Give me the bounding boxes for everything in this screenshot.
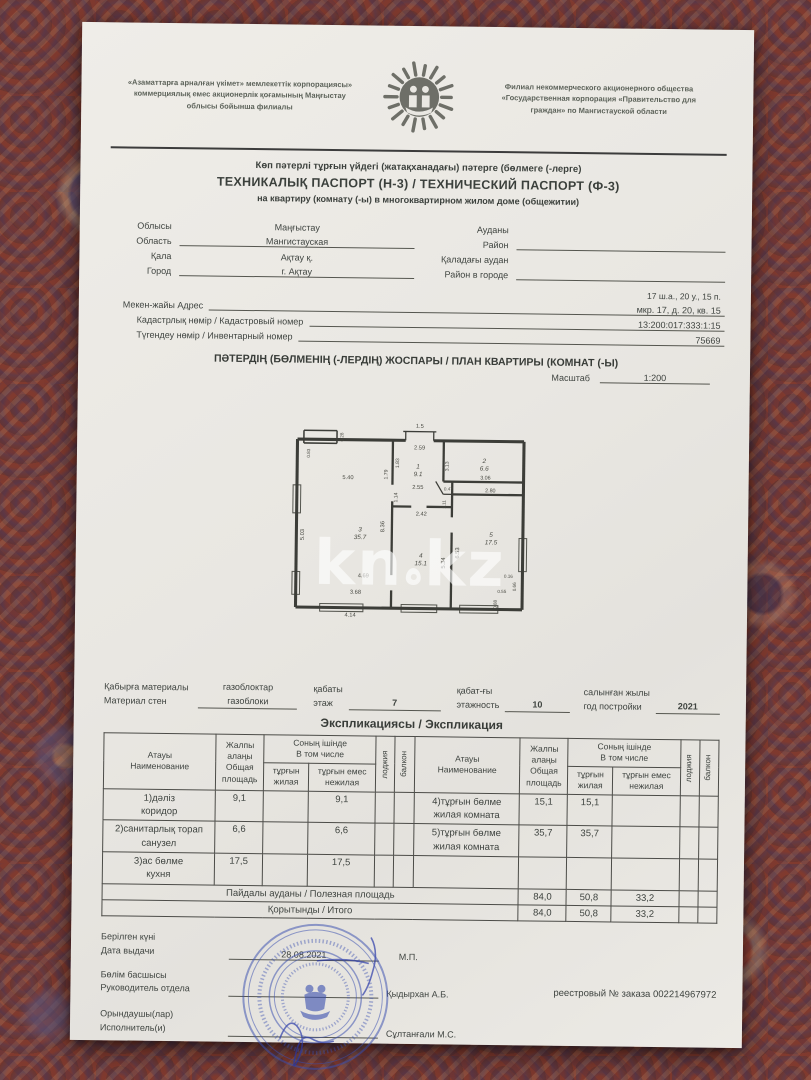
col-living-right: тұрғын жилая [568,766,613,794]
plan-dimension-label: 0.47 [444,486,453,491]
plan-dimension-label: 0.83 [306,448,311,457]
plan-dimension-label: 2.42 [416,512,427,518]
room-name-cell: 3)ас бөлме кухня [102,852,215,885]
org-name-kazakh: «Азаматтарға арналған үкімет» мемлекетті… [111,76,368,113]
area-value-cell [519,857,567,889]
government-corporation-sun-logo-icon [376,54,463,141]
department-head-label: Бөлім басшысы Руководитель отдела [100,968,220,997]
stamp-place-label: М.П. [399,951,418,961]
area-value-cell: 6,6 [215,822,263,854]
wall-line [435,481,443,494]
department-head-name: Қыдырхан А.Б. [386,989,536,1001]
title-line-russian: на квартиру (комнату (-ы) в многоквартир… [110,191,726,209]
build-year-label: салынған жылы год постройки [583,686,649,714]
wall-line [522,442,524,610]
wall-line [443,482,523,483]
col-total-right: Жалпы алаңы Общая площадь [520,738,569,794]
col-name-right: Атауы Наименование [414,737,520,794]
col-nonliving-left: тұрғын емес нежилая [308,763,376,792]
floor-label: қабаты этаж [313,683,343,710]
room-name-cell: 4)тұрғын бөлме жилая комната [414,792,520,825]
explication-table: Атауы Наименование Жалпы алаңы Общая пло… [101,732,719,923]
district-label-kz: Ауданы [421,224,517,235]
plan-dimension-label: 3.06 [480,475,490,481]
wall-line [295,607,522,610]
room-name-cell [413,856,519,889]
floor-plan: 1.52.5919.12.551.831.791.1426.63.133.060… [105,411,724,639]
executor-name: Сұлтанғали М.С. [386,1029,536,1041]
plan-dimension-label: 1.5 [416,424,424,430]
total-value-cell [678,906,697,922]
address-block: 17 ш.а., 20 у., 15 п. Мекен-жайы Адресмк… [108,279,725,347]
city-label-kz: Қала [109,250,179,261]
total-value-cell: 50,8 [566,889,611,906]
plan-dimension-label: 2.80 [485,488,495,494]
org-name-russian: Филиал некоммерческого акционерного обще… [470,81,727,118]
plan-dimension-label: 1.14 [393,492,399,502]
plan-dimension-label: 2.55 [412,485,423,491]
kn-kz-watermark: knkz [314,526,507,601]
registry-order-number: реестровый № заказа 002214967972 [553,987,716,1000]
total-value-cell [698,907,717,923]
area-value-cell [698,827,718,859]
area-value-cell: 6,6 [308,823,376,855]
total-value-cell: 33,2 [611,906,678,923]
area-value-cell: 17,5 [214,853,262,885]
area-value-cell: 35,7 [567,826,612,858]
area-value-cell [375,792,395,824]
explication-heading: Экспликациясы / Экспликация [104,713,720,735]
plan-dimension-label: 1 [416,464,420,471]
col-balcony-left: балкон [395,736,415,792]
wall-material-label: Қабырға материалы Материал стен [104,680,189,708]
area-value-cell: 9,1 [308,791,376,823]
total-value-cell [698,891,717,907]
oblast-label-ru: Область [110,235,180,246]
area-value-cell: 35,7 [519,825,567,857]
total-value-cell: 84,0 [518,888,566,905]
materials-row: Қабырға материалы Материал стен газоблок… [104,679,720,715]
plan-dimension-label: 4.14 [344,613,356,619]
area-value-cell [612,795,680,827]
col-total-left: Жалпы алаңы Общая площадь [215,734,264,790]
document-header: «Азаматтарға арналған үкімет» мемлекетті… [111,50,728,144]
area-value-cell: 9,1 [215,790,263,822]
area-value-cell [263,791,308,823]
plan-dimension-label: 5.40 [342,475,353,481]
area-value-cell [262,854,307,886]
department-head-signature-line [228,986,378,999]
area-value-cell: 15,1 [519,794,567,826]
area-value-cell: 17,5 [307,854,375,886]
city-district-value-ru [516,279,725,283]
plan-dimension-label: 2.59 [414,445,425,451]
total-value-cell: 50,8 [566,905,611,922]
area-value-cell [263,822,308,854]
plan-dimension-label: 9.1 [413,471,422,478]
area-value-cell [611,858,679,890]
plan-dimension-label: 5.03 [300,529,306,540]
city-label-ru: Город [109,265,179,276]
room-name-cell: 5)тұрғын бөлме жилая комната [413,824,519,857]
inventory-value: 75669 [299,331,725,347]
wall-line [452,494,523,495]
area-value-cell [394,855,414,887]
area-value-cell [679,796,699,828]
col-incl-right: Соның ішінде В том числе [568,738,680,767]
document-title: Көп пәтерлі тұрғын үйдегі (жатақханадағы… [110,158,726,209]
photo-of-document: { "header": { "org_left": "«Азаматтарға … [0,0,811,1080]
col-incl-left: Соның ішінде В том числе [264,735,376,764]
build-year-value: 2021 [656,699,720,714]
issue-date-value: 28.08.2021 [229,948,379,961]
wall-material-value: газоблоктар газоблоки [198,680,297,709]
wall-line [295,439,297,607]
area-value-cell [567,857,612,889]
col-nonliving-right: тұрғын емес нежилая [613,767,681,796]
address-label: Мекен-жайы Адрес [109,299,210,310]
plan-dimension-label: 2 [481,458,486,465]
plan-dimension-label: 3.13 [444,461,450,471]
floors-total-label: қабат-ғы этажность [456,685,499,713]
col-loggia-left: лоджия [376,736,396,792]
col-loggia-right: лоджия [680,740,700,796]
city-value-ru: г. Ақтау [179,265,414,279]
city-district-label-ru: Район в городе [420,269,516,280]
scale-label: Масштаб [551,373,590,383]
total-value-cell: 84,0 [518,904,566,921]
district-label-ru: Район [420,239,516,250]
area-value-cell [374,855,394,887]
city-district-label-kz: Қаладағы аудан [420,254,516,265]
area-value-cell [698,859,718,891]
col-name-left: Атауы Наименование [103,733,216,790]
area-value-cell [699,796,719,828]
watermark-drop-icon [406,568,421,585]
document-sheet: «Азаматтарға арналған үкімет» мемлекетті… [70,22,754,1048]
issue-date-label: Берілген күні Дата выдачи [101,930,221,959]
room-name-cell: 1)дәліз коридор [103,789,216,822]
area-value-cell [375,824,395,856]
executor-label: Орындаушы(лар) Исполнитель(и) [100,1008,220,1037]
plan-dimension-label: 1.83 [395,458,401,468]
area-value-cell: 15,1 [567,794,612,826]
executor-signature-line [228,1026,378,1039]
area-value-cell [394,824,414,856]
total-value-cell [678,890,697,906]
area-value-cell [679,859,699,891]
col-balcony-right: балкон [699,740,719,796]
plan-dimension-label: 0.28 [339,432,344,441]
wall-line [392,440,393,485]
floor-value: 7 [349,696,441,712]
scale-value: 1:200 [600,372,710,384]
wall-line [434,441,524,442]
inventory-label: Түгендеу нөмір / Инвентарный номер [108,329,298,341]
area-value-cell [394,792,414,824]
total-value-cell: 33,2 [611,890,678,907]
floors-total-value: 10 [505,698,569,713]
plan-dimension-label: 1.11 [441,500,446,509]
area-value-cell [679,827,699,859]
document-footer: Берілген күні Дата выдачи 28.08.2021 М.П… [100,930,717,1043]
header-divider [111,146,727,156]
wall-line [297,439,405,440]
plan-dimension-label: 6.6 [480,466,489,473]
plan-dimension-label: 0.66 [512,582,517,591]
area-value-cell [612,826,680,858]
oblast-label-kz: Облысы [110,220,180,231]
location-fields: ОблысыМаңғыстау ОбластьМангистауская Қал… [109,215,726,283]
plan-dimension-label: 1.79 [383,469,389,479]
col-living-left: тұрғын жилая [264,763,309,791]
room-name-cell: 2)санитарлық торап санузел [103,820,216,853]
